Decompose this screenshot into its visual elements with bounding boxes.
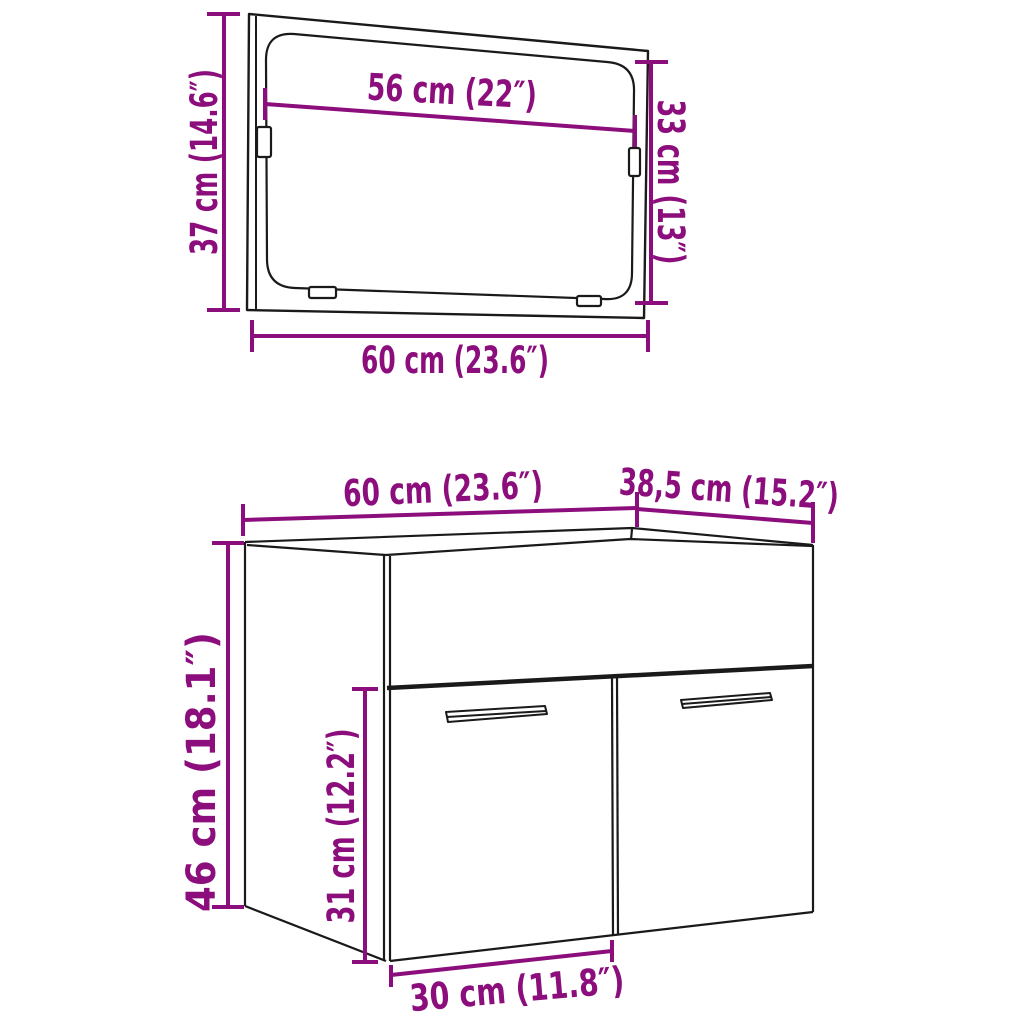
mirror-clip-right xyxy=(629,148,640,176)
dim-door-height-label: 31 cm (12.2″) xyxy=(320,729,363,924)
mirror-clip-bottom-left xyxy=(309,287,336,298)
mirror-clip-left xyxy=(257,127,271,157)
cabinet-front-face xyxy=(386,539,813,961)
dim-mirror-width-label: 60 cm (23.6″) xyxy=(361,339,549,382)
cabinet-door-split-left xyxy=(612,677,613,935)
cabinet-top-corner-edge xyxy=(631,529,632,540)
diagram-canvas: 37 cm (14.6″) 56 cm (22″) 33 cm (13″) 60… xyxy=(0,0,1024,1024)
mirror-clip-bottom-right xyxy=(577,296,601,306)
dim-mirror-height-label: 37 cm (14.6″) xyxy=(183,69,226,255)
cabinet-figure: 60 cm (23.6″) 38,5 cm (15.2″) 46 cm (18.… xyxy=(179,460,840,1020)
dim-cabinet-height-label: 46 cm (18.1″) xyxy=(179,632,225,912)
dim-mirror-glass-width-label: 56 cm (22″) xyxy=(366,66,538,118)
dim-mirror-glass-height-label: 33 cm (13″) xyxy=(649,100,692,265)
mirror-figure: 37 cm (14.6″) 56 cm (22″) 33 cm (13″) 60… xyxy=(183,14,692,382)
dim-cabinet-width-label: 60 cm (23.6″) xyxy=(342,464,544,516)
cabinet-door-split-right xyxy=(617,676,618,934)
product-dimension-diagram: 37 cm (14.6″) 56 cm (22″) 33 cm (13″) 60… xyxy=(0,0,1024,1024)
